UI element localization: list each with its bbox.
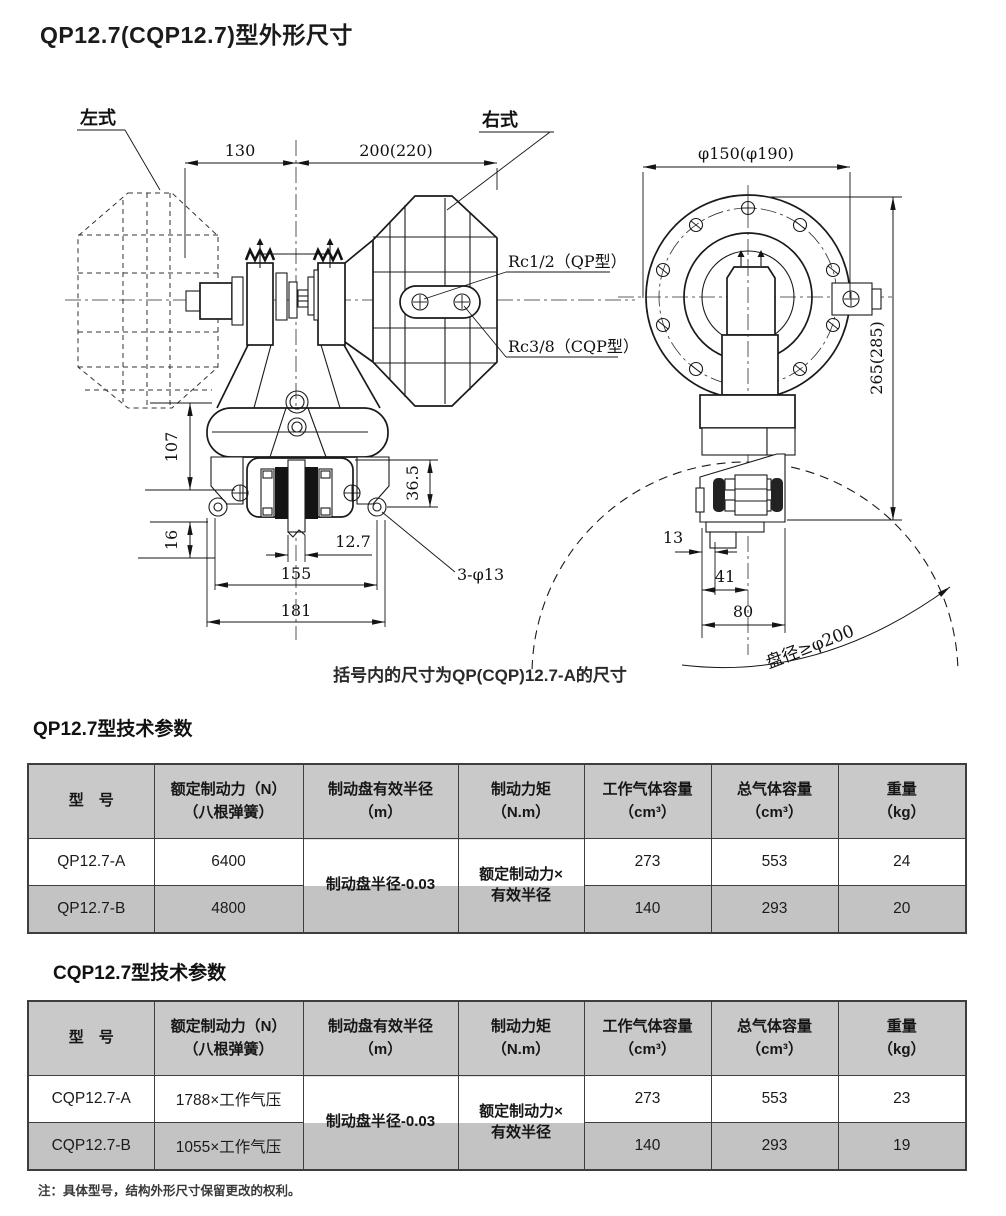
model-cell: CQP12.7-A xyxy=(28,1076,154,1123)
total-volume-cell: 293 xyxy=(711,886,838,933)
technical-drawing: 130 200(220) φ150(φ190) 265(285) 107 16 xyxy=(30,90,980,670)
dim-155: 155 xyxy=(281,564,312,583)
col-header-torque: 制动力矩（N.m） xyxy=(458,1001,584,1076)
dim-181: 181 xyxy=(281,601,312,620)
force-cell: 4800 xyxy=(154,886,303,933)
total-volume-cell: 293 xyxy=(711,1123,838,1170)
total-volume-cell: 553 xyxy=(711,1076,838,1123)
col-header-force: 额定制动力（N）（八根弹簧） xyxy=(154,764,303,839)
dim-36-5: 36.5 xyxy=(403,465,422,501)
dim-265-285: 265(285) xyxy=(867,321,886,395)
weight-cell: 20 xyxy=(838,886,966,933)
work-volume-cell: 273 xyxy=(584,839,711,886)
force-cell: 6400 xyxy=(154,839,303,886)
dim-phi150: φ150(φ190) xyxy=(698,144,794,163)
drawing-caption: 括号内的尺寸为QP(CQP)12.7-A的尺寸 xyxy=(280,661,680,686)
col-header-weight: 重量（kg） xyxy=(838,764,966,839)
col-header-total-volume: 总气体容量（cm³） xyxy=(711,1001,838,1076)
work-volume-cell: 140 xyxy=(584,1123,711,1170)
dim-130: 130 xyxy=(225,141,256,160)
col-header-force: 额定制动力（N）（八根弹簧） xyxy=(154,1001,303,1076)
col-header-radius: 制动盘有效半径（m） xyxy=(303,1001,458,1076)
dimension-annotations: 130 200(220) φ150(φ190) 265(285) 107 16 xyxy=(77,107,950,670)
table-row: CQP12.7-A 1788×工作气压 制动盘半径-0.03 额定制动力×有效半… xyxy=(28,1076,966,1123)
model-cell: QP12.7-B xyxy=(28,886,154,933)
spring-symbol-right xyxy=(314,250,342,260)
cqp-spec-table: 型 号 额定制动力（N）（八根弹簧） 制动盘有效半径（m） 制动力矩（N.m） … xyxy=(27,1000,967,1171)
torque-merged-cell: 额定制动力×有效半径 xyxy=(458,1076,584,1170)
model-cell: QP12.7-A xyxy=(28,839,154,886)
model-cell: CQP12.7-B xyxy=(28,1123,154,1170)
brake-pad-right xyxy=(305,467,318,519)
brake-disc-edge xyxy=(288,460,305,532)
label-rc-qp: Rc1/2（QP型） xyxy=(508,252,627,271)
dim-200-220: 200(220) xyxy=(359,141,433,160)
weight-cell: 24 xyxy=(838,839,966,886)
page-title: QP12.7(CQP12.7)型外形尺寸 xyxy=(40,16,353,50)
header-row: 型 号 额定制动力（N）（八根弹簧） 制动盘有效半径（m） 制动力矩（N.m） … xyxy=(28,764,966,839)
dim-16: 16 xyxy=(162,530,181,550)
weight-cell: 23 xyxy=(838,1076,966,1123)
datasheet-page: QP12.7(CQP12.7)型外形尺寸 xyxy=(0,0,1006,1216)
qp-spec-table: 型 号 额定制动力（N）（八根弹簧） 制动盘有效半径（m） 制动力矩（N.m） … xyxy=(27,763,967,934)
work-volume-cell: 140 xyxy=(584,886,711,933)
dim-80: 80 xyxy=(733,602,753,621)
qp-table-title: QP12.7型技术参数 xyxy=(33,714,192,741)
dim-13: 13 xyxy=(663,528,683,547)
col-header-weight: 重量（kg） xyxy=(838,1001,966,1076)
footnote: 注：具体型号，结构外形尺寸保留更改的权利。 xyxy=(38,1180,301,1199)
total-volume-cell: 553 xyxy=(711,839,838,886)
side-view-caliper xyxy=(207,391,389,537)
label-rc-cqp: Rc3/8（CQP型） xyxy=(508,337,639,356)
brake-pad-left xyxy=(275,467,288,519)
dim-41: 41 xyxy=(715,567,735,586)
side-view-shaft xyxy=(186,277,243,325)
header-row: 型 号 额定制动力（N）（八根弹簧） 制动盘有效半径（m） 制动力矩（N.m） … xyxy=(28,1001,966,1076)
force-cell: 1788×工作气压 xyxy=(154,1076,303,1123)
table-row: QP12.7-A 6400 制动盘半径-0.03 额定制动力×有效半径 273 … xyxy=(28,839,966,886)
label-left-style: 左式 xyxy=(80,107,116,128)
cqp-table-title: CQP12.7型技术参数 xyxy=(53,958,226,985)
front-view xyxy=(646,195,881,548)
col-header-work-volume: 工作气体容量（cm³） xyxy=(584,1001,711,1076)
col-header-torque: 制动力矩（N.m） xyxy=(458,764,584,839)
dim-107: 107 xyxy=(162,432,181,463)
col-header-radius: 制动盘有效半径（m） xyxy=(303,764,458,839)
force-cell: 1055×工作气压 xyxy=(154,1123,303,1170)
col-header-model: 型 号 xyxy=(28,764,154,839)
torque-merged-cell: 额定制动力×有效半径 xyxy=(458,839,584,933)
work-volume-cell: 273 xyxy=(584,1076,711,1123)
col-header-total-volume: 总气体容量（cm³） xyxy=(711,764,838,839)
dim-12-7: 12.7 xyxy=(335,532,371,551)
label-3-phi13: 3-φ13 xyxy=(457,565,504,584)
radius-merged-cell: 制动盘半径-0.03 xyxy=(303,839,458,933)
col-header-work-volume: 工作气体容量（cm³） xyxy=(584,764,711,839)
side-view-air-chamber xyxy=(345,196,497,406)
weight-cell: 19 xyxy=(838,1123,966,1170)
label-right-style: 右式 xyxy=(482,109,518,130)
radius-merged-cell: 制动盘半径-0.03 xyxy=(303,1076,458,1170)
col-header-model: 型 号 xyxy=(28,1001,154,1076)
